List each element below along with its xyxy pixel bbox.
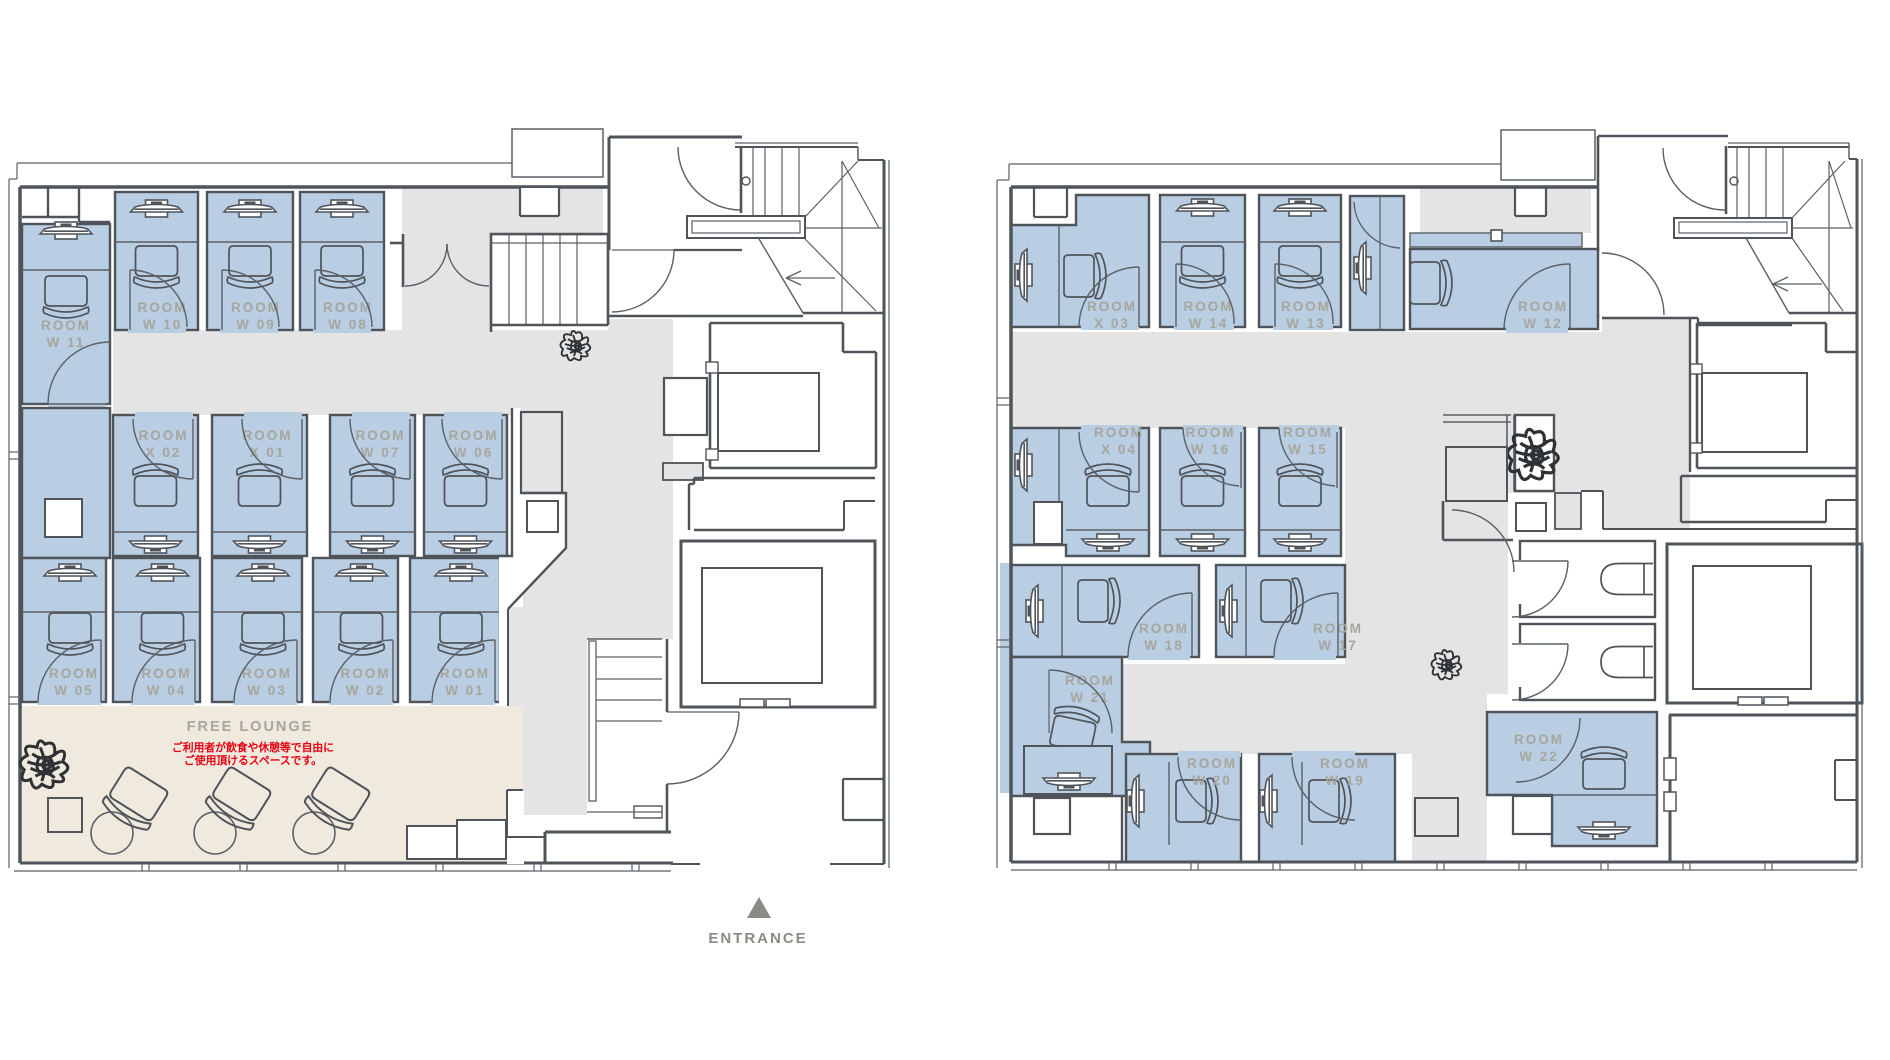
svg-text:ROOM: ROOM xyxy=(139,428,189,443)
svg-text:ROOM: ROOM xyxy=(1187,756,1237,771)
svg-text:ROOM: ROOM xyxy=(242,666,292,681)
svg-text:W 02: W 02 xyxy=(346,683,386,698)
svg-text:ROOM: ROOM xyxy=(41,318,91,333)
svg-text:W 05: W 05 xyxy=(54,683,94,698)
svg-text:ROOM: ROOM xyxy=(1186,425,1236,440)
svg-text:W 09: W 09 xyxy=(236,317,276,332)
svg-text:W 03: W 03 xyxy=(247,683,287,698)
svg-text:W 20: W 20 xyxy=(1192,773,1232,788)
svg-text:W 18: W 18 xyxy=(1144,638,1184,653)
svg-text:ROOM: ROOM xyxy=(1283,425,1333,440)
svg-text:ROOM: ROOM xyxy=(323,300,373,315)
svg-text:ROOM: ROOM xyxy=(138,300,188,315)
svg-text:X 03: X 03 xyxy=(1094,316,1130,331)
svg-text:W 22: W 22 xyxy=(1519,749,1559,764)
svg-text:W 08: W 08 xyxy=(328,317,368,332)
svg-text:W 15: W 15 xyxy=(1288,442,1328,457)
svg-text:X 01: X 01 xyxy=(250,445,286,460)
svg-text:X 04: X 04 xyxy=(1101,442,1137,457)
svg-text:W 06: W 06 xyxy=(454,445,494,460)
svg-text:FREE LOUNGE: FREE LOUNGE xyxy=(187,719,314,735)
svg-text:ROOM: ROOM xyxy=(440,666,490,681)
svg-text:ROOM: ROOM xyxy=(341,666,391,681)
svg-text:ROOM: ROOM xyxy=(243,428,293,443)
svg-text:ROOM: ROOM xyxy=(142,666,192,681)
svg-text:ROOM: ROOM xyxy=(1087,299,1137,314)
svg-text:ROOM: ROOM xyxy=(1184,299,1234,314)
svg-text:W 01: W 01 xyxy=(445,683,485,698)
svg-text:X 02: X 02 xyxy=(146,445,182,460)
svg-text:W 10: W 10 xyxy=(143,317,183,332)
svg-text:ROOM: ROOM xyxy=(1518,299,1568,314)
svg-text:ENTRANCE: ENTRANCE xyxy=(708,930,807,947)
svg-text:W 16: W 16 xyxy=(1191,442,1231,457)
svg-text:ROOM: ROOM xyxy=(49,666,99,681)
svg-text:W 13: W 13 xyxy=(1286,316,1326,331)
svg-text:W 11: W 11 xyxy=(47,335,86,350)
svg-text:ご利用者が飲食や休憩等で自由に: ご利用者が飲食や休憩等で自由に xyxy=(172,740,334,754)
svg-text:ROOM: ROOM xyxy=(1094,425,1144,440)
svg-text:ROOM: ROOM xyxy=(1514,732,1564,747)
svg-text:W 12: W 12 xyxy=(1523,316,1563,331)
svg-text:ROOM: ROOM xyxy=(1281,299,1331,314)
svg-text:ROOM: ROOM xyxy=(449,428,499,443)
svg-text:W 19: W 19 xyxy=(1325,773,1365,788)
svg-text:W 04: W 04 xyxy=(147,683,187,698)
svg-text:W 14: W 14 xyxy=(1189,316,1229,331)
svg-text:ROOM: ROOM xyxy=(1139,621,1189,636)
svg-text:ご使用頂けるスペースです。: ご使用頂けるスペースです。 xyxy=(184,753,322,767)
svg-text:ROOM: ROOM xyxy=(1320,756,1370,771)
svg-text:ROOM: ROOM xyxy=(356,428,406,443)
svg-text:W 07: W 07 xyxy=(361,445,401,460)
